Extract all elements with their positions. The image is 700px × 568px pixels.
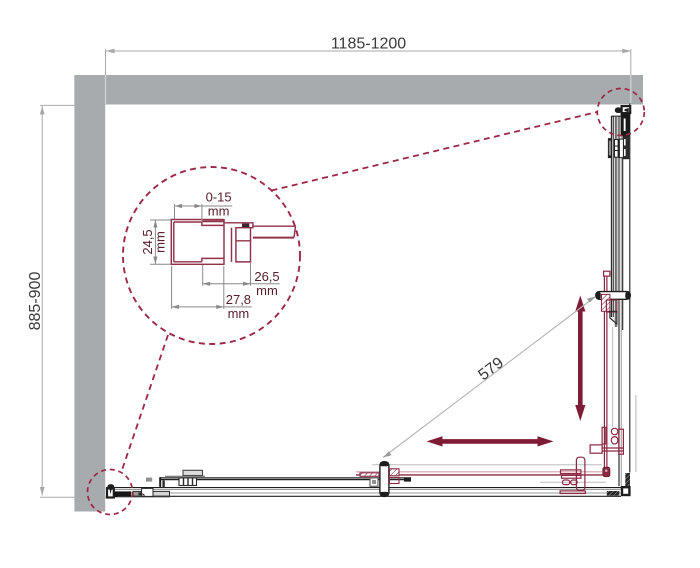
svg-text:0-15: 0-15 [206, 190, 232, 205]
svg-text:26,5: 26,5 [254, 269, 279, 284]
svg-text:mm: mm [256, 283, 278, 298]
svg-text:mm: mm [228, 306, 250, 321]
svg-text:885-900: 885-900 [27, 272, 44, 331]
svg-text:mm: mm [153, 231, 168, 253]
svg-text:mm: mm [208, 204, 230, 219]
svg-text:27,8: 27,8 [226, 292, 251, 307]
svg-text:1185-1200: 1185-1200 [331, 36, 406, 53]
